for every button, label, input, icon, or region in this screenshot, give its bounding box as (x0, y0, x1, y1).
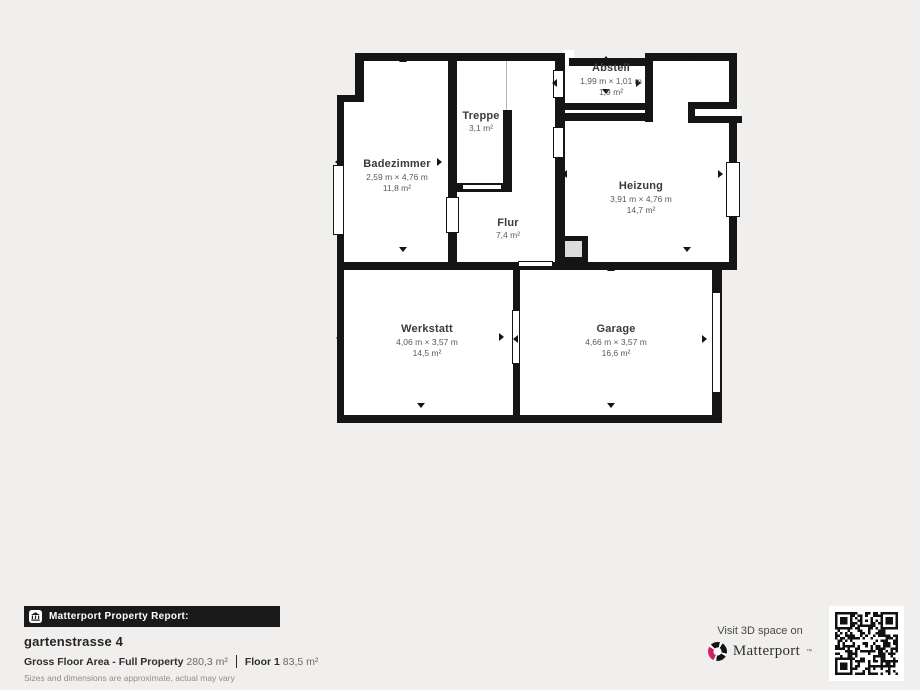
floor-area-value: 83,5 m² (283, 656, 319, 668)
room-dimensions: 1,99 m × 1,01 m (580, 76, 642, 87)
room-name: Treppe (462, 110, 499, 123)
measure-arrow-down (683, 247, 691, 252)
matterport-wordmark: Matterport (733, 643, 800, 660)
measure-arrow-right (499, 333, 504, 341)
wall (557, 103, 652, 110)
measure-arrow-left (562, 170, 567, 178)
stair-edge-line (506, 61, 507, 110)
room-name: Werkstatt (396, 323, 458, 336)
room-dimensions: 4,06 m × 3,57 m (396, 337, 458, 348)
room-label-flur: Flur7,4 m² (496, 217, 520, 241)
wall (503, 110, 512, 192)
door-opening (462, 184, 502, 190)
wall (337, 415, 722, 423)
room-area: 16,6 m² (585, 348, 647, 359)
measure-arrow-left (335, 158, 340, 166)
room-area: 14,7 m² (610, 205, 672, 216)
measure-arrow-up (417, 265, 425, 270)
room-name: Flur (496, 217, 520, 230)
report-footer: Matterport Property Report: gartenstrass… (24, 606, 324, 683)
room-area: 3,1 m² (462, 123, 499, 134)
measure-arrow-up (602, 56, 610, 61)
area-stats: Gross Floor Area - Full Property 280,3 m… (24, 655, 324, 668)
measure-arrow-left (336, 334, 341, 342)
report-banner: Matterport Property Report: (24, 606, 280, 627)
room-area: 1,9 m² (580, 87, 642, 98)
measure-arrow-down (399, 247, 407, 252)
room-label-treppe: Treppe3,1 m² (462, 110, 499, 134)
window (333, 165, 344, 235)
window (726, 162, 740, 217)
measure-arrow-up (607, 266, 615, 271)
room-name: Abstell (580, 62, 642, 75)
measure-arrow-right (718, 170, 723, 178)
disclaimer-text: Sizes and dimensions are approximate, ac… (24, 673, 324, 683)
wall (557, 113, 652, 121)
room-area: 11,8 m² (363, 183, 430, 194)
wall (688, 102, 737, 109)
chimney-inner (565, 241, 582, 257)
visit-3d-cta: Visit 3D space on Matterport™ (700, 625, 820, 661)
door-opening (553, 127, 564, 158)
door-opening (518, 261, 553, 267)
room-dimensions: 2,59 m × 4,76 m (363, 172, 430, 183)
room-dimensions: 3,91 m × 4,76 m (610, 194, 672, 205)
wall (355, 53, 565, 61)
wall (688, 116, 742, 123)
property-report-page: Badezimmer2,59 m × 4,76 m11,8 m²Treppe3,… (0, 0, 920, 690)
qr-code (829, 606, 904, 681)
wall-gap (727, 109, 741, 116)
report-banner-label: Matterport Property Report: (49, 611, 189, 622)
door-opening (712, 292, 721, 393)
gross-floor-area-value: 280,3 m² (186, 656, 227, 668)
measure-arrow-left (552, 79, 557, 87)
measure-arrow-right (702, 335, 707, 343)
room-name: Badezimmer (363, 158, 430, 171)
room-area: 7,4 m² (496, 230, 520, 241)
room-label-werkstatt: Werkstatt4,06 m × 3,57 m14,5 m² (396, 323, 458, 359)
floor-label: Floor 1 (245, 656, 280, 668)
stats-divider (236, 655, 237, 668)
property-name: gartenstrasse 4 (24, 634, 324, 649)
wall (645, 53, 653, 122)
matterport-link[interactable]: Matterport™ (700, 642, 820, 661)
visit-text: Visit 3D space on (700, 625, 820, 637)
measure-arrow-up (399, 57, 407, 62)
trademark-mark: ™ (806, 649, 812, 655)
building-columns-icon (29, 610, 42, 623)
door-opening (446, 197, 459, 233)
room-name: Heizung (610, 180, 672, 193)
measure-arrow-left (513, 335, 518, 343)
gross-floor-area-label: Gross Floor Area - Full Property (24, 656, 183, 668)
wall (688, 102, 695, 123)
wall (448, 53, 457, 270)
measure-arrow-up (686, 56, 694, 61)
wall (337, 95, 344, 423)
room-area: 14,5 m² (396, 348, 458, 359)
measure-arrow-right (437, 158, 442, 166)
room-label-abstell: Abstell1,99 m × 1,01 m1,9 m² (580, 62, 642, 98)
room-label-heizung: Heizung3,91 m × 4,76 m14,7 m² (610, 180, 672, 216)
room-name: Garage (585, 323, 647, 336)
measure-arrow-down (417, 403, 425, 408)
matterport-aperture-icon (708, 642, 727, 661)
room-dimensions: 4,66 m × 3,57 m (585, 337, 647, 348)
room-label-garage: Garage4,66 m × 3,57 m16,6 m² (585, 323, 647, 359)
room-label-badezimmer: Badezimmer2,59 m × 4,76 m11,8 m² (363, 158, 430, 194)
measure-arrow-down (607, 403, 615, 408)
floor-plan: Badezimmer2,59 m × 4,76 m11,8 m²Treppe3,… (0, 0, 920, 600)
